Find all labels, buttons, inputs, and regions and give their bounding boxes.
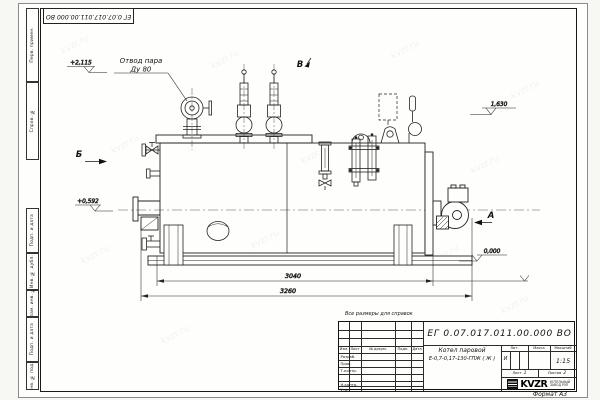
title-block: Изм. Лист № докум. Подп. Дата Разраб. Пр… — [338, 321, 575, 390]
kvzr-logo-text: KVZR — [520, 379, 547, 390]
steam-outlet-valve — [181, 97, 212, 138]
lifting-lug — [381, 127, 399, 143]
sheet-number-cell: Лист 1 — [501, 369, 538, 377]
col-header-data: Дата — [411, 347, 423, 351]
product-name-line2: Е-0,7-0,17-130-ГПЖ ( Ж ) — [423, 356, 501, 362]
steam-outlet-callout: Отвод пара Ду 80 — [114, 57, 187, 101]
feed-elbow — [133, 197, 160, 230]
dome-hump — [352, 134, 370, 143]
reference-note: Все размеры для справок — [345, 311, 413, 317]
mass-header: Масса — [528, 346, 550, 350]
sheet-value: 1 — [524, 371, 527, 376]
blowdown-fitting — [142, 236, 160, 250]
grid-line — [339, 374, 423, 375]
manhole — [207, 222, 229, 241]
format-label: Формат А3 — [495, 391, 600, 398]
callout-line1: Отвод пара — [120, 57, 163, 65]
elevation-marks: +2,115 +0,592 1,630 0,000 — [67, 61, 516, 262]
document-designation: ЕГ 0.07.017.011.00.000 ВО — [423, 322, 576, 345]
sheets-label: Листов — [548, 371, 561, 375]
elevation-top: +2,115 — [70, 61, 92, 67]
grid-line — [510, 351, 511, 369]
company-cell: KVZR КОТЕЛЬНЫЙ ЗАВОД РЭП — [501, 377, 576, 391]
product-name-line1: Котел паровой — [423, 347, 501, 354]
siphon-tube — [409, 96, 422, 143]
grid-line — [501, 351, 576, 352]
burner — [433, 185, 469, 229]
elevation-right: 1,630 — [491, 102, 508, 108]
col-header-list: Лист — [349, 347, 361, 351]
drawing-sheet: { "sheet": { "format_label": "Формат А3"… — [0, 0, 600, 400]
dim-shell-length: 3040 — [285, 273, 301, 280]
view-label-b: Б — [76, 150, 83, 160]
row-label-razrab: Разраб. — [339, 354, 363, 359]
view-label-a: А — [487, 211, 495, 221]
dim-overall-length: 3260 — [280, 288, 296, 295]
col-header-dokum: № докум. — [361, 347, 395, 351]
elevation-zero: 0,000 — [484, 249, 501, 255]
lit-header: Лит. — [501, 346, 528, 350]
kvzr-logo-icon — [507, 379, 518, 390]
row-label-utv: Утв. — [339, 387, 363, 392]
sheets-total-cell: Листов 2 — [538, 369, 576, 377]
scale-header: Масштаб — [550, 346, 576, 350]
sheets-total-value: 2 — [563, 371, 566, 376]
row-label-prov: Пров. — [339, 361, 363, 366]
grid-line — [339, 338, 423, 339]
left-fittings — [142, 143, 160, 179]
view-label-v: В — [297, 60, 303, 70]
grid-line — [339, 330, 423, 331]
provision-dashed-box — [379, 94, 397, 125]
elevation-mid: +0,592 — [77, 199, 99, 205]
water-gauge-single — [319, 142, 331, 190]
burner-motor — [437, 216, 449, 229]
centerlines — [118, 64, 540, 210]
grid-line — [519, 351, 520, 369]
water-level-gauge — [349, 133, 379, 186]
company-caption: КОТЕЛЬНЫЙ ЗАВОД РЭП — [550, 381, 570, 388]
lit-value: И — [501, 356, 510, 362]
boiler-shell — [148, 135, 472, 265]
col-header-izm: Изм. — [339, 347, 349, 351]
col-header-podp: Подп. — [395, 347, 411, 351]
sheet-label: Лист — [512, 371, 521, 375]
row-label-tkontr: Т.контр. — [339, 368, 363, 373]
callout-line2: Ду 80 — [130, 66, 152, 74]
company-caption-line2: ЗАВОД РЭП — [550, 384, 570, 388]
scale-value: 1:15 — [550, 357, 576, 365]
